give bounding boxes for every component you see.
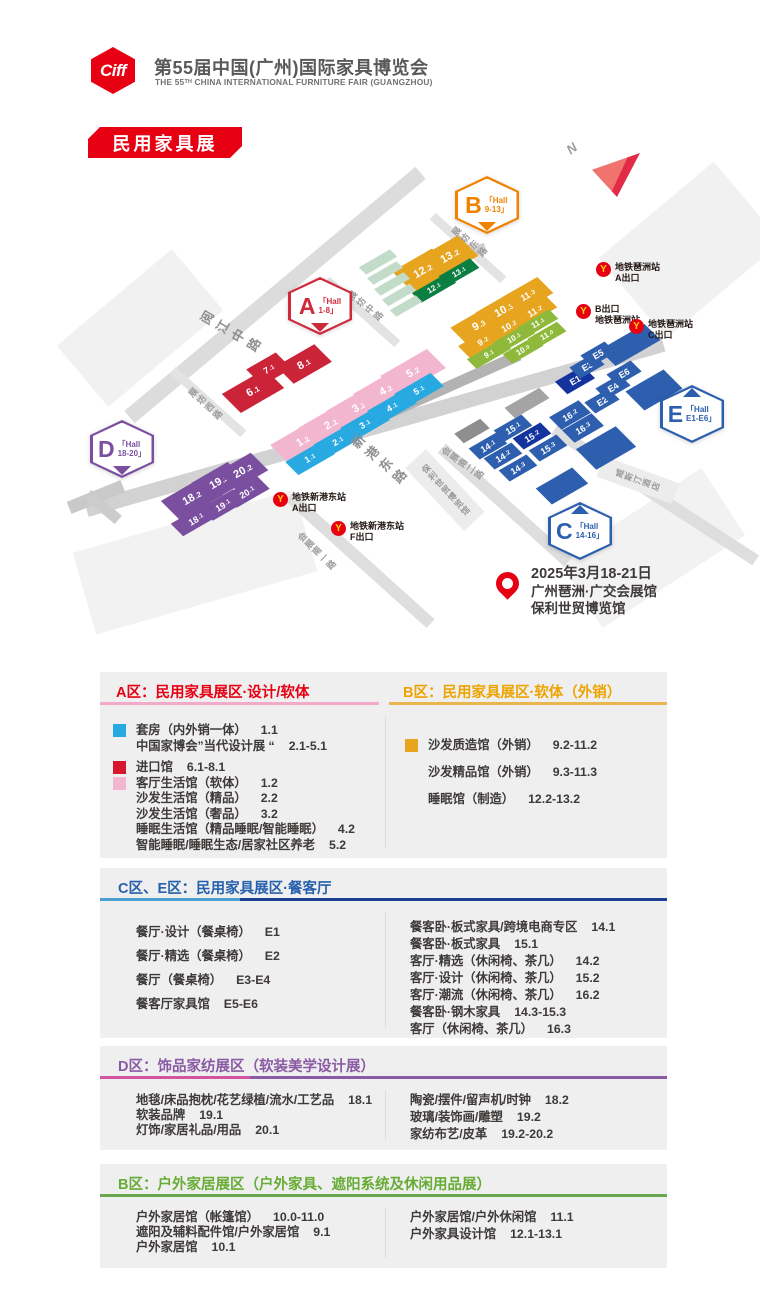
legend-list: 餐客卧·板式家具/跨境电商专区14.1餐客卧·板式家具15.1客厅·精选（休闲椅… — [410, 918, 615, 1037]
legend-item-code: E3-E4 — [236, 973, 270, 987]
legend-item: 地毯/床品抱枕/花艺绿植/流水/工艺品18.1 — [136, 1093, 372, 1108]
badge-letter: E — [668, 403, 683, 426]
section-underline — [250, 1076, 667, 1079]
legend-item-text: 客厅·潮流（休闲椅、茶几） — [410, 988, 562, 1002]
metro-exit: Y地铁新港东站F出口 — [331, 521, 404, 543]
legend-item-code: 10.0-11.0 — [273, 1210, 324, 1224]
legend-item: 餐客卧·钢木家具14.3-15.3 — [410, 1005, 615, 1020]
legend-item-text: 智能睡眠/睡眠生态/居家社区养老 — [136, 838, 315, 852]
metro-exit-label: 地铁琶洲站A出口 — [615, 262, 660, 284]
badge-hall-range: 「Hall18-20」 — [118, 440, 146, 458]
legend-item-code: 14.2 — [576, 954, 600, 968]
legend-item-code: 16.2 — [576, 988, 600, 1002]
legend-item: 沙发质造馆（外销）9.2-11.2 — [428, 738, 597, 753]
section-title: C区、E区：民用家具展区·餐客厅 — [118, 877, 331, 898]
legend-item-code: E1 — [265, 925, 280, 939]
legend-list: 地毯/床品抱枕/花艺绿植/流水/工艺品18.1软装品牌19.1灯饰/家居礼品/用… — [136, 1093, 372, 1138]
legend-item-text: 睡眠生活馆（精品睡眠/智能睡眠） — [136, 822, 324, 836]
legend-item-text: 餐厅·精选（餐桌椅） — [136, 949, 251, 963]
legend-item-text: 套房（内外销一体） — [136, 723, 247, 737]
section-underline — [100, 898, 240, 901]
hall-badge-d: D「Hall18-20」 — [90, 420, 154, 478]
legend-list: 沙发质造馆（外销）9.2-11.2沙发精品馆（外销）9.3-11.3睡眠馆（制造… — [428, 726, 597, 807]
legend-item-code: 3.2 — [261, 807, 278, 821]
metro-exit-label: 地铁新港东站F出口 — [350, 521, 404, 543]
legend-item: 睡眠生活馆（精品睡眠/智能睡眠）4.2 — [136, 822, 355, 838]
event-info: 2025年3月18-21日 广州琶洲·广交会展馆 保利世贸博览馆 — [531, 565, 657, 617]
event-date: 2025年3月18-21日 — [531, 565, 657, 583]
road-label-5: 新港东路 — [346, 431, 413, 492]
hall-badge-c: C「Hall14-16」 — [548, 502, 612, 560]
legend-item-text: 中国家博会”当代设计展 “ — [136, 739, 275, 753]
section-underline — [240, 898, 667, 901]
legend-item-code: 16.3 — [547, 1022, 571, 1036]
legend-item-code: 1.2 — [261, 776, 278, 790]
column-divider — [385, 1208, 386, 1258]
badge-hall-range: 「Hall9-13」 — [485, 196, 509, 214]
legend-item: 餐厅·精选（餐桌椅）E2 — [136, 949, 280, 964]
legend-card-4: B区：户外家居展区（户外家具、遮阳系统及休闲用品展）户外家居馆（帐篷馆）10.0… — [100, 1164, 667, 1268]
badge-pointer — [683, 388, 701, 397]
legend-item-text: 灯饰/家居礼品/用品 — [136, 1123, 241, 1137]
legend-item-text: 睡眠馆（制造） — [428, 792, 514, 806]
legend-item: 餐厅（餐桌椅）E3-E4 — [136, 973, 280, 988]
legend-item: 智能睡眠/睡眠生态/居家社区养老5.2 — [136, 838, 355, 854]
legend-item-text: 陶瓷/摆件/留声机/时钟 — [410, 1093, 531, 1107]
legend-item: 家纺布艺/皮革19.2-20.2 — [410, 1127, 569, 1142]
legend-item-text: 餐客厅家具馆 — [136, 997, 210, 1011]
legend-item-code: 19.1 — [199, 1108, 223, 1122]
legend-item-text: 家纺布艺/皮革 — [410, 1127, 487, 1141]
metro-icon: Y — [596, 262, 611, 277]
section-title: D区：饰品家纺展区（软装美学设计展） — [118, 1055, 375, 1076]
legend-item-code: 2.1-5.1 — [289, 739, 327, 753]
legend-item-code: 19.2 — [517, 1110, 541, 1124]
section-underline — [100, 1194, 667, 1197]
legend-list: 套房（内外销一体）1.1中国家博会”当代设计展 “2.1-5.1进口馆6.1-8… — [136, 723, 355, 853]
badge-hall-range: 「Hall14-16」 — [576, 522, 604, 540]
legend-item: 陶瓷/摆件/留声机/时钟18.2 — [410, 1093, 569, 1108]
badge-hall-range: 「Hall1-8」 — [318, 297, 341, 315]
legend-item-text: 客厅（休闲椅、茶几） — [410, 1022, 533, 1036]
legend-item-text: 户外家居馆/户外休闲馆 — [410, 1210, 536, 1224]
legend-item-code: 12.1-13.1 — [510, 1227, 562, 1241]
legend-list: 户外家居馆/户外休闲馆11.1户外家具设计馆12.1-13.1 — [410, 1208, 574, 1242]
legend-item-code: 15.2 — [576, 971, 600, 985]
badge-letter: D — [98, 438, 115, 461]
legend-item-code: 14.3-15.3 — [514, 1005, 566, 1019]
legend-item-code: 5.2 — [329, 838, 346, 852]
legend-item-text: 户外家居馆（帐篷馆） — [136, 1210, 259, 1224]
legend-item-text: 餐客卧·钢木家具 — [410, 1005, 500, 1019]
legend-item: 沙发生活馆（奢品）3.2 — [136, 807, 355, 823]
section-title: B区：民用家具展区·软体（外销） — [403, 681, 621, 702]
legend-item: 户外家居馆（帐篷馆）10.0-11.0 — [136, 1210, 330, 1225]
legend-item-code: 4.2 — [338, 822, 355, 836]
legend-item-text: 餐客卧·板式家具 — [410, 937, 500, 951]
legend-item-code: 18.1 — [348, 1093, 372, 1107]
legend-item-text: 软装品牌 — [136, 1108, 185, 1122]
legend-swatch — [113, 724, 126, 737]
legend-item-code: E2 — [265, 949, 280, 963]
hall-label: 8.1 — [279, 343, 329, 386]
badge-letter: B — [465, 194, 482, 217]
map-shape — [536, 467, 588, 504]
badge-letter: A — [299, 295, 316, 318]
metro-exit: Y地铁琶洲站A出口 — [596, 262, 660, 284]
legend-item: 睡眠馆（制造）12.2-13.2 — [428, 792, 597, 807]
legend-item-code: 11.1 — [550, 1210, 573, 1224]
legend-list: 户外家居馆（帐篷馆）10.0-11.0遮阳及辅料配件馆/户外家居馆9.1户外家居… — [136, 1210, 330, 1255]
legend-item: 软装品牌19.1 — [136, 1108, 372, 1123]
legend-item-text: 遮阳及辅料配件馆/户外家居馆 — [136, 1225, 299, 1239]
legend-item: 沙发生活馆（精品）2.2 — [136, 791, 355, 807]
badge-hall-range: 「HallE1-E6」 — [686, 405, 716, 423]
legend-item-text: 户外家具设计馆 — [410, 1227, 496, 1241]
legend-swatch — [113, 761, 126, 774]
legend-item: 遮阳及辅料配件馆/户外家居馆9.1 — [136, 1225, 330, 1240]
legend-item: 套房（内外销一体）1.1 — [136, 723, 355, 739]
badge-pointer — [311, 323, 329, 332]
legend-item-code: 12.2-13.2 — [528, 792, 580, 806]
legend-item-text: 客厅生活馆（软体） — [136, 776, 247, 790]
badge-letter: C — [556, 520, 573, 543]
hall-badge-b: B「Hall9-13」 — [455, 176, 519, 234]
legend-item: 客厅（休闲椅、茶几）16.3 — [410, 1022, 615, 1037]
legend-item-text: 户外家居馆 — [136, 1240, 198, 1254]
section-title: B区：户外家居展区（户外家具、遮阳系统及休闲用品展） — [118, 1173, 491, 1194]
legend-item-text: 餐厅（餐桌椅） — [136, 973, 222, 987]
legend-item: 沙发精品馆（外销）9.3-11.3 — [428, 765, 597, 780]
legend-item-text: 餐客卧·板式家具/跨境电商专区 — [410, 920, 577, 934]
legend-item-text: 沙发生活馆（奢品） — [136, 807, 247, 821]
legend-item: 中国家博会”当代设计展 “2.1-5.1 — [136, 739, 355, 755]
metro-icon: Y — [576, 304, 591, 319]
legend-card-3: D区：饰品家纺展区（软装美学设计展）地毯/床品抱枕/花艺绿植/流水/工艺品18.… — [100, 1046, 667, 1150]
legend-item: 客厅·潮流（休闲椅、茶几）16.2 — [410, 988, 615, 1003]
column-divider — [385, 716, 386, 848]
legend-item-text: 沙发生活馆（精品） — [136, 791, 247, 805]
legend-item: 玻璃/装饰画/雕塑19.2 — [410, 1110, 569, 1125]
legend-item-code: 9.3-11.3 — [553, 765, 597, 779]
legend-item: 户外家居馆/户外休闲馆11.1 — [410, 1210, 574, 1225]
legend-item-code: 19.2-20.2 — [501, 1127, 553, 1141]
legend-item: 户外家具设计馆12.1-13.1 — [410, 1227, 574, 1242]
legend-item: 餐客厅家具馆E5-E6 — [136, 997, 280, 1012]
legend-swatch — [113, 777, 126, 790]
metro-exit-label: 地铁琶洲站C出口 — [648, 319, 693, 341]
column-divider — [385, 912, 386, 1028]
map-hall-8-1: 8.1 — [276, 344, 332, 384]
legend-swatch — [405, 739, 418, 752]
legend-item-code: 20.1 — [255, 1123, 279, 1137]
legend-item-code: 2.2 — [261, 791, 278, 805]
event-venue-2: 保利世贸博览馆 — [531, 600, 657, 617]
legend-item-text: 沙发质造馆（外销） — [428, 738, 539, 752]
metro-exit-label: 地铁新港东站A出口 — [292, 492, 346, 514]
section-underline — [389, 702, 667, 705]
legend-item-code: 1.1 — [261, 723, 278, 737]
legend-item: 灯饰/家居礼品/用品20.1 — [136, 1123, 372, 1138]
section-title: A区：民用家具展区·设计/软体 — [116, 681, 309, 702]
event-venue-1: 广州琶洲·广交会展馆 — [531, 583, 657, 600]
metro-exit: Y地铁琶洲站C出口 — [629, 319, 693, 341]
metro-icon: Y — [331, 521, 346, 536]
legend-item: 户外家居馆10.1 — [136, 1240, 330, 1255]
badge-pointer — [571, 505, 589, 514]
legend-item-code: 14.1 — [591, 920, 615, 934]
road-label-4: 展坊西路 — [185, 384, 226, 423]
legend-item-code: 9.2-11.2 — [553, 738, 597, 752]
legend-list: 陶瓷/摆件/留声机/时钟18.2玻璃/装饰画/雕塑19.2家纺布艺/皮革19.2… — [410, 1091, 569, 1142]
legend-item-text: 沙发精品馆（外销） — [428, 765, 539, 779]
legend-item-code: E5-E6 — [224, 997, 258, 1011]
metro-icon: Y — [273, 492, 288, 507]
road-band — [57, 249, 223, 407]
legend-item-text: 玻璃/装饰画/雕塑 — [410, 1110, 503, 1124]
legend-item: 进口馆6.1-8.1 — [136, 760, 355, 776]
fair-map-poster: Ciff 第55届中国(广州)国际家具博览会 THE 55ᵀᴴ CHINA IN… — [0, 0, 760, 1291]
section-underline — [100, 702, 379, 705]
metro-icon: Y — [629, 319, 644, 334]
legend-item-code: 6.1-8.1 — [187, 760, 225, 774]
legend-item: 客厅·精选（休闲椅、茶几）14.2 — [410, 954, 615, 969]
column-divider — [385, 1090, 386, 1140]
hall-badge-e: E「HallE1-E6」 — [660, 385, 724, 443]
legend-item: 餐客卧·板式家具15.1 — [410, 937, 615, 952]
legend-item: 客厅生活馆（软体）1.2 — [136, 776, 355, 792]
legend-item-code: 18.2 — [545, 1093, 569, 1107]
legend-item-code: 9.1 — [313, 1225, 330, 1239]
legend-item-text: 客厅·设计（休闲椅、茶几） — [410, 971, 562, 985]
legend-item-code: 15.1 — [514, 937, 538, 951]
legend-item: 餐厅·设计（餐桌椅）E1 — [136, 925, 280, 940]
legend-item-text: 餐厅·设计（餐桌椅） — [136, 925, 251, 939]
legend-item-text: 地毯/床品抱枕/花艺绿植/流水/工艺品 — [136, 1093, 334, 1107]
badge-pointer — [113, 466, 131, 475]
legend-item-code: 10.1 — [212, 1240, 236, 1254]
legend-card-1: A区：民用家具展区·设计/软体B区：民用家具展区·软体（外销）套房（内外销一体）… — [100, 672, 667, 858]
legend-card-2: C区、E区：民用家具展区·餐客厅餐厅·设计（餐桌椅）E1餐厅·精选（餐桌椅）E2… — [100, 868, 667, 1038]
legend-item-text: 进口馆 — [136, 760, 173, 774]
metro-exit: Y地铁新港东站A出口 — [273, 492, 346, 514]
section-underline — [100, 1076, 250, 1079]
hall-badge-a: A「Hall1-8」 — [288, 277, 352, 335]
badge-pointer — [478, 222, 496, 231]
legend-list: 餐厅·设计（餐桌椅）E1餐厅·精选（餐桌椅）E2餐厅（餐桌椅）E3-E4餐客厅家… — [136, 916, 280, 1012]
legend-item: 客厅·设计（休闲椅、茶几）15.2 — [410, 971, 615, 986]
legend-item: 餐客卧·板式家具/跨境电商专区14.1 — [410, 920, 615, 935]
legend-item-text: 客厅·精选（休闲椅、茶几） — [410, 954, 562, 968]
